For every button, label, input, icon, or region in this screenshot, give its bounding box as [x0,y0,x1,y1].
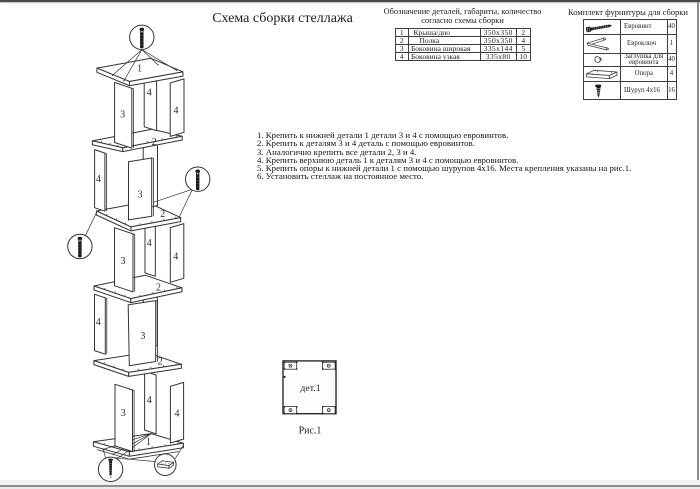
svg-text:1: 1 [137,64,142,75]
svg-text:4: 4 [96,317,101,328]
svg-text:4: 4 [147,238,152,249]
svg-text:4: 4 [173,252,178,263]
svg-text:1: 1 [146,437,151,448]
svg-text:2: 2 [152,137,157,148]
svg-text:4: 4 [174,105,179,116]
svg-text:3: 3 [121,408,126,419]
svg-text:3: 3 [120,109,125,120]
svg-text:2: 2 [156,282,161,293]
svg-text:2: 2 [160,209,165,220]
svg-text:3: 3 [140,331,145,342]
svg-text:4: 4 [147,395,152,406]
svg-text:3: 3 [138,190,143,201]
svg-text:4: 4 [147,87,152,98]
svg-text:4: 4 [175,409,180,420]
svg-text:2: 2 [158,356,163,367]
svg-text:3: 3 [121,256,126,267]
svg-text:4: 4 [96,174,101,185]
